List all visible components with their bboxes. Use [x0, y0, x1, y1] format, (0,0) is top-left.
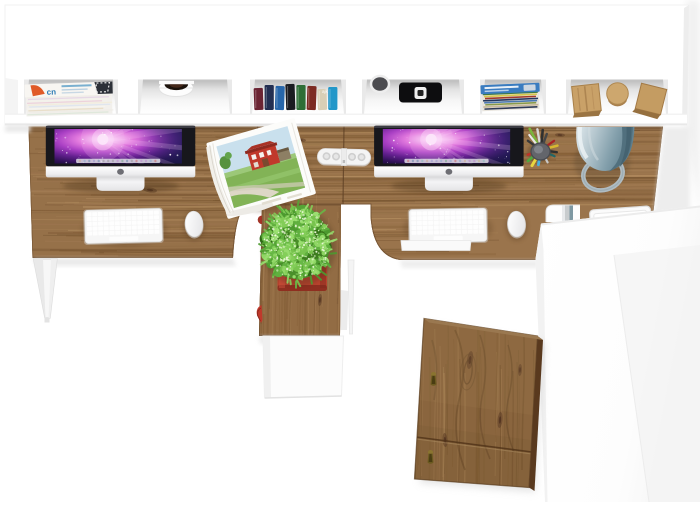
svg-text:cn: cn	[47, 87, 57, 96]
svg-text:ajk: ajk	[322, 89, 329, 94]
